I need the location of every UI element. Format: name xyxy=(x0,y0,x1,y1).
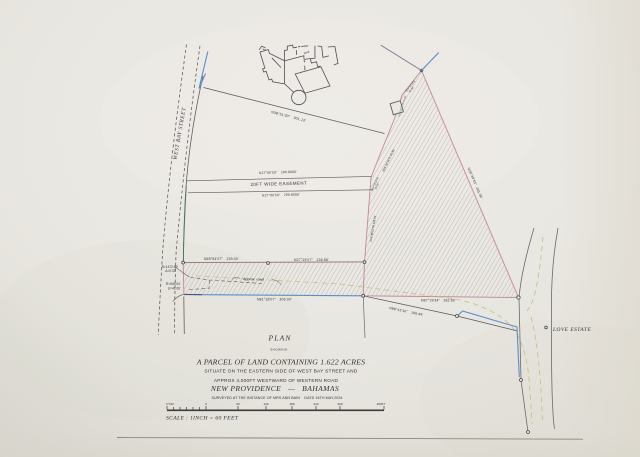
svg-text:Approx. road: Approx. road xyxy=(242,277,265,282)
svg-text:Δ=9.33': Δ=9.33' xyxy=(165,269,176,273)
svg-text:SITUATE ON THE EASTERN SIDE OF: SITUATE ON THE EASTERN SIDE OF WEST BAY … xyxy=(204,369,358,375)
svg-text:120: 120 xyxy=(263,402,268,406)
svg-text:Δ=41.06': Δ=41.06' xyxy=(168,286,181,290)
svg-text:180: 180 xyxy=(289,402,294,406)
svg-text:SCALE : 1INCH = 60 FEET: SCALE : 1INCH = 60 FEET xyxy=(166,416,239,422)
svg-text:PLAN: PLAN xyxy=(268,334,292,343)
svg-text:N27°15'07" 136.88': N27°15'07" 136.88' xyxy=(294,258,329,262)
svg-text:N69°54'07" 139.00': N69°54'07" 139.00' xyxy=(204,257,239,261)
svg-text:A PARCEL OF LAND CONTAINING 1.: A PARCEL OF LAND CONTAINING 1.622 ACRES xyxy=(196,358,365,367)
svg-text:LOVE ESTATE: LOVE ESTATE xyxy=(552,327,592,333)
svg-text:300: 300 xyxy=(337,402,342,406)
svg-text:APPROX 4,000FT WESTWARD OF WES: APPROX 4,000FT WESTWARD OF WESTERN ROAD xyxy=(214,378,339,383)
svg-text:N81°18'07" 306.00': N81°18'07" 306.00' xyxy=(257,298,292,302)
svg-text:N87°19'34" 282.80': N87°19'34" 282.80' xyxy=(421,299,456,303)
svg-text:FT.60: FT.60 xyxy=(166,402,174,406)
svg-text:240: 240 xyxy=(313,402,318,406)
svg-text:60: 60 xyxy=(236,402,240,406)
svg-text:360FT: 360FT xyxy=(377,402,386,406)
svg-text:NEW PROVIDENCE — BAHAMAS: NEW PROVIDENCE — BAHAMAS xyxy=(210,384,339,393)
svg-text:SHOWING: SHOWING xyxy=(270,348,288,352)
svg-text:SURVEYED AT THE INSTANCE OF MR: SURVEYED AT THE INSTANCE OF MRS ANN BAIN… xyxy=(211,396,342,400)
